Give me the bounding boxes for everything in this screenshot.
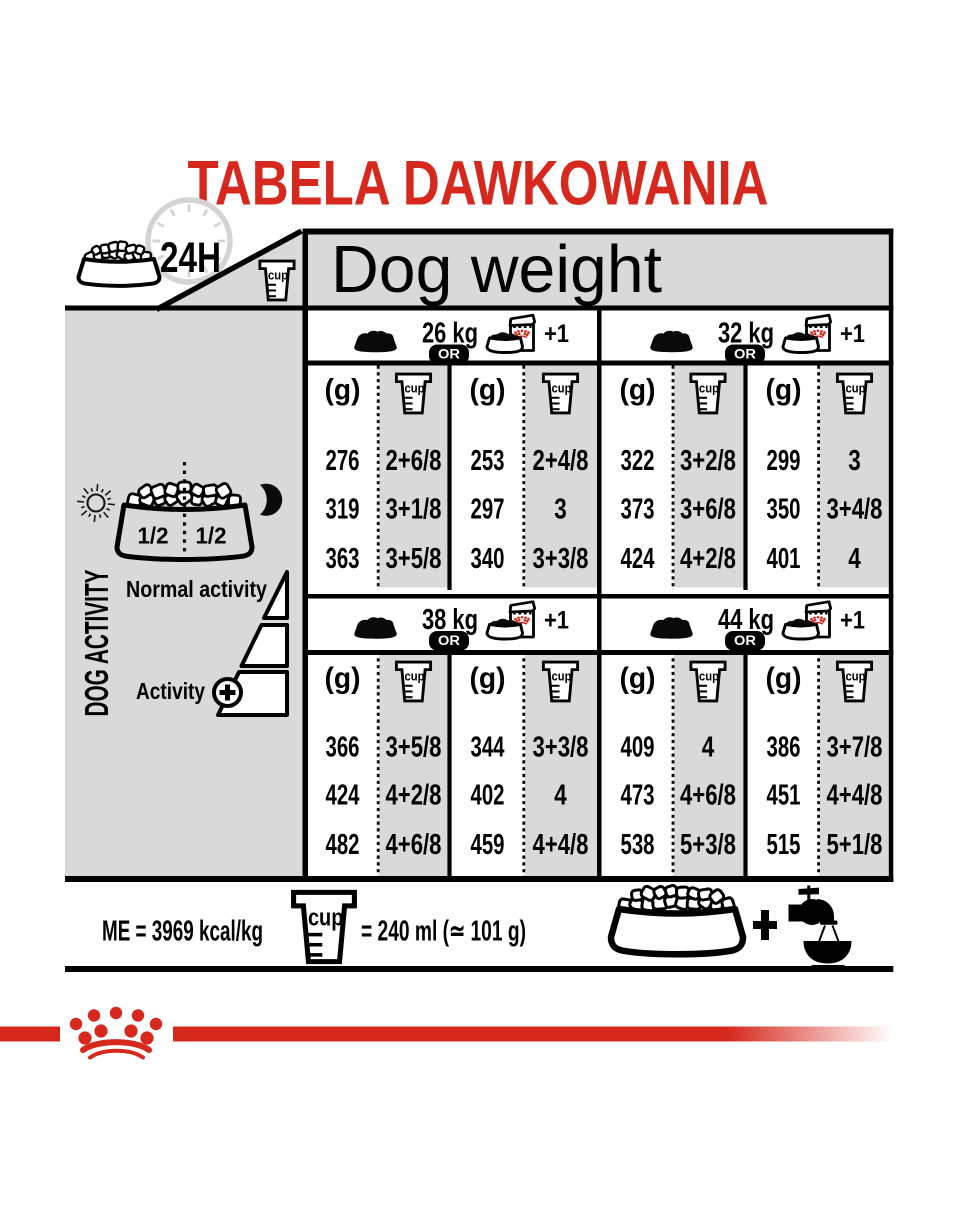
svg-text:TABELA DAWKOWANIA: TABELA DAWKOWANIA [188, 149, 769, 219]
svg-text:386: 386 [767, 732, 801, 764]
svg-text:DOG ACTIVITY: DOG ACTIVITY [78, 570, 115, 717]
svg-text:(g): (g) [325, 374, 361, 407]
svg-text:373: 373 [621, 493, 655, 525]
svg-text:3+5/8: 3+5/8 [386, 543, 442, 575]
svg-text:5+3/8: 5+3/8 [680, 829, 736, 861]
svg-text:424: 424 [326, 780, 360, 812]
svg-text:(g): (g) [470, 662, 506, 695]
svg-text:344: 344 [471, 732, 505, 764]
svg-text:4: 4 [554, 780, 567, 812]
svg-text:+1: +1 [544, 607, 569, 635]
svg-text:3+6/8: 3+6/8 [680, 493, 736, 525]
svg-text:424: 424 [621, 543, 655, 575]
svg-text:4+6/8: 4+6/8 [680, 780, 736, 812]
svg-text:2+6/8: 2+6/8 [386, 445, 442, 477]
svg-text:297: 297 [471, 493, 505, 525]
svg-text:4+4/8: 4+4/8 [827, 780, 883, 812]
svg-text:538: 538 [621, 829, 655, 861]
svg-text:OR: OR [438, 347, 460, 362]
svg-text:482: 482 [326, 829, 360, 861]
svg-text:Normal activity: Normal activity [126, 576, 267, 602]
svg-text:366: 366 [326, 732, 360, 764]
svg-text:+1: +1 [840, 607, 865, 635]
svg-text:+1: +1 [840, 320, 865, 348]
svg-text:4+4/8: 4+4/8 [533, 829, 589, 861]
svg-text:(g): (g) [325, 662, 361, 695]
svg-text:1/2: 1/2 [138, 523, 169, 549]
svg-text:Dog weight: Dog weight [331, 232, 662, 307]
svg-text:= 240 ml (≃ 101 g): = 240 ml (≃ 101 g) [361, 916, 526, 948]
svg-text:340: 340 [471, 543, 505, 575]
svg-text:3+4/8: 3+4/8 [827, 493, 883, 525]
svg-text:459: 459 [471, 829, 505, 861]
svg-text:409: 409 [621, 732, 655, 764]
svg-text:253: 253 [471, 445, 505, 477]
svg-text:(g): (g) [620, 374, 656, 407]
svg-text:319: 319 [326, 493, 360, 525]
svg-text:5+1/8: 5+1/8 [827, 829, 883, 861]
svg-text:ME = 3969 kcal/kg: ME = 3969 kcal/kg [102, 916, 263, 948]
svg-text:473: 473 [621, 780, 655, 812]
svg-text:+1: +1 [544, 320, 569, 348]
svg-text:3+3/8: 3+3/8 [533, 732, 589, 764]
svg-text:3+5/8: 3+5/8 [386, 732, 442, 764]
svg-text:3+7/8: 3+7/8 [827, 732, 883, 764]
svg-text:(g): (g) [620, 662, 656, 695]
svg-text:OR: OR [438, 633, 460, 648]
svg-text:4: 4 [848, 543, 861, 575]
svg-text:515: 515 [767, 829, 801, 861]
svg-text:2+4/8: 2+4/8 [533, 445, 589, 477]
svg-text:1/2: 1/2 [196, 523, 227, 549]
svg-text:3+2/8: 3+2/8 [680, 445, 736, 477]
svg-text:451: 451 [767, 780, 801, 812]
svg-text:3+1/8: 3+1/8 [386, 493, 442, 525]
svg-text:(g): (g) [470, 374, 506, 407]
svg-text:Activity: Activity [136, 678, 205, 704]
svg-text:4+2/8: 4+2/8 [680, 543, 736, 575]
svg-text:3+3/8: 3+3/8 [533, 543, 589, 575]
svg-text:(g): (g) [766, 662, 802, 695]
svg-text:402: 402 [471, 780, 505, 812]
svg-text:276: 276 [326, 445, 360, 477]
svg-text:24H: 24H [160, 234, 221, 282]
svg-text:4+2/8: 4+2/8 [386, 780, 442, 812]
svg-text:OR: OR [734, 347, 756, 362]
svg-text:322: 322 [621, 445, 655, 477]
svg-text:3: 3 [848, 445, 861, 477]
svg-text:4+6/8: 4+6/8 [386, 829, 442, 861]
svg-text:401: 401 [767, 543, 801, 575]
svg-text:299: 299 [767, 445, 801, 477]
svg-text:(g): (g) [766, 374, 802, 407]
svg-text:3: 3 [554, 493, 567, 525]
svg-text:350: 350 [767, 493, 801, 525]
svg-text:OR: OR [734, 633, 756, 648]
svg-text:4: 4 [702, 732, 715, 764]
svg-text:363: 363 [326, 543, 360, 575]
